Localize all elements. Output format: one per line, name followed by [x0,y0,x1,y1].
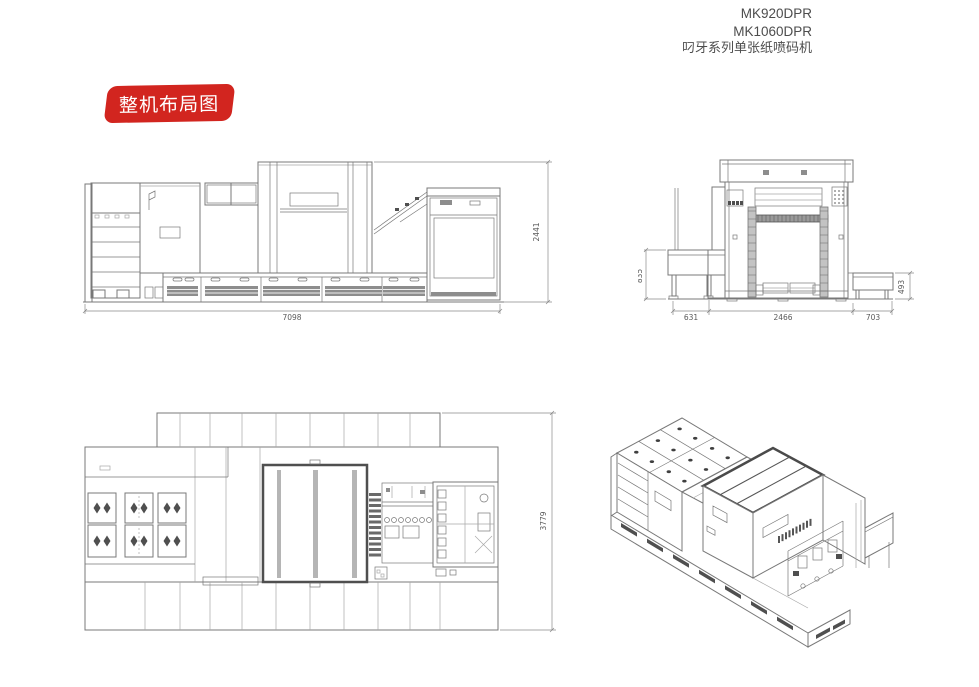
front-view-span-right-dim: 703 [866,313,881,322]
top-view-drawing: 3779 [80,398,560,648]
front-dimensions: 835 493 631 2466 703 [638,248,914,322]
isometric-view-figure [603,396,903,660]
isometric-view-drawing [603,396,903,660]
top-view-depth-dim: 3779 [539,511,548,530]
front-view-span-center-dim: 2466 [773,313,792,322]
front-view-left-height-dim: 835 [638,269,644,284]
front-view-right-height-dim: 493 [897,280,906,295]
model-number-1: MK920DPR [682,5,812,23]
front-view-drawing: 835 493 631 2466 703 [638,153,928,325]
side-view-drawing: 7098 2441 [80,148,560,330]
side-view-figure: 7098 2441 [80,148,560,330]
page-header: MK920DPR MK1060DPR 叼牙系列单张纸喷码机 [682,5,812,57]
top-view-figure: 3779 [80,398,560,648]
side-base-platform [83,273,504,302]
series-title: 叼牙系列单张纸喷码机 [682,40,812,57]
plan-print-table [263,460,367,587]
side-machine-outline [85,162,500,302]
front-view-span-left-dim: 631 [684,313,699,322]
side-view-height-dim: 2441 [532,222,541,241]
catalog-page: MK920DPR MK1060DPR 叼牙系列单张纸喷码机 整机布局图 [0,0,979,687]
front-machine-outline [668,160,893,301]
plan-transfer-machinery [382,483,433,563]
plan-delivery-unit [375,482,498,579]
section-title-label: 整机布局图 [119,89,220,118]
section-title-badge: 整机布局图 [104,84,236,123]
model-number-2: MK1060DPR [682,23,812,41]
plan-comb-strip [369,495,381,556]
side-view-width-dim: 7098 [282,313,301,322]
side-dimensions: 7098 2441 [83,160,552,322]
plan-dimensions: 3779 [442,411,556,632]
plan-feeder-panels [88,493,258,585]
front-view-figure: 835 493 631 2466 703 [638,153,928,325]
